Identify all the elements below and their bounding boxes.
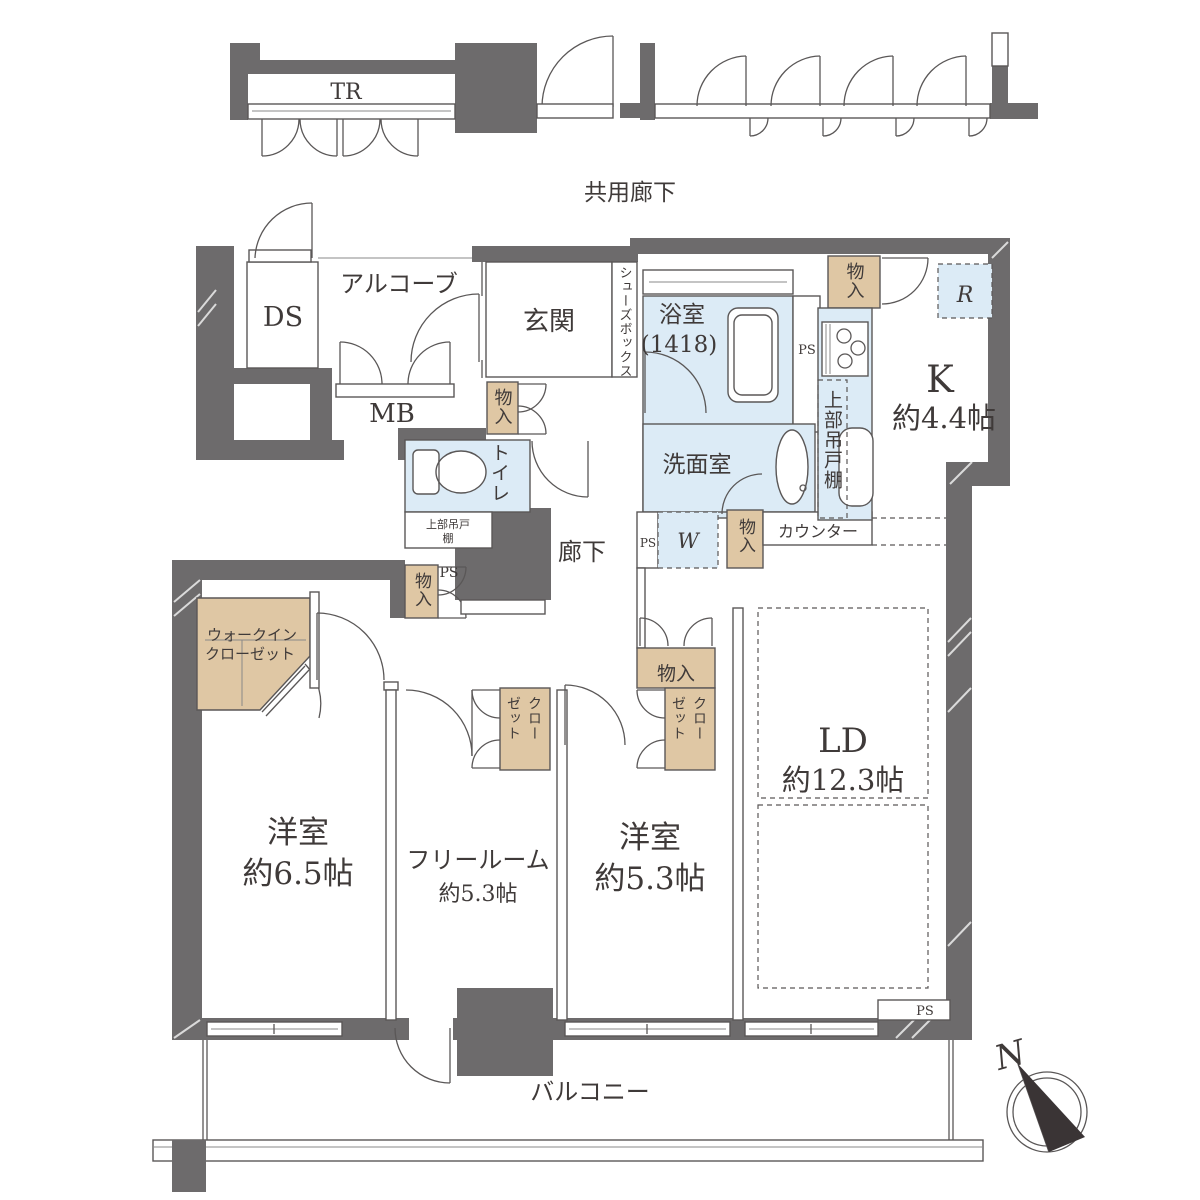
label-balcony: バルコニー xyxy=(530,1078,650,1106)
toilet-room: トイレ xyxy=(405,440,530,512)
free-room-door xyxy=(406,690,472,756)
entry-zone: DS アルコーブ MB 玄関 シューズボックス xyxy=(247,203,637,429)
label-storage-washroom: 物入 xyxy=(735,518,756,554)
label-common-corridor: 共用廊下 xyxy=(584,180,676,206)
label-bedroom2-size: 約5.3帖 xyxy=(594,861,705,897)
kitchen-sink xyxy=(839,428,873,506)
label-wic-2: クローゼット xyxy=(205,645,295,663)
storage-kitchen: 物入 xyxy=(828,256,928,308)
walk-in-closet: ウォークイン クローゼット xyxy=(197,598,321,718)
label-washroom: 洗面室 xyxy=(663,452,732,478)
label-kitchen-size: 約4.4帖 xyxy=(892,401,996,435)
floor-plan: TR 共用廊下 xyxy=(0,0,1200,1200)
label-bathroom: 浴室 xyxy=(659,302,705,328)
label-free-room-size: 約5.3帖 xyxy=(439,882,518,907)
label-bedroom2: 洋室 xyxy=(619,820,681,856)
bedroom1-door xyxy=(317,613,384,680)
label-storage-kitchen: 物入 xyxy=(844,262,865,300)
label-closet1-col1: クロー xyxy=(526,696,542,741)
storage-hall-upper: 物入 xyxy=(487,382,546,434)
label-counter: カウンター xyxy=(778,522,858,541)
label-bathroom-size: (1418) xyxy=(641,332,717,358)
label-storage-hall-upper: 物入 xyxy=(492,388,513,426)
window-living xyxy=(745,1022,878,1036)
label-alcove: アルコーブ xyxy=(340,270,458,298)
tr-double-doors xyxy=(262,119,418,156)
label-ps-living: PS xyxy=(916,1004,934,1019)
label-closet2-col1: クロー xyxy=(691,696,707,741)
window-bedroom2 xyxy=(565,1022,730,1036)
label-north: N xyxy=(989,1032,1031,1079)
label-living-dining-size: 約12.3帖 xyxy=(782,763,905,797)
closet-free-room: クロー ゼット xyxy=(472,688,550,770)
stove xyxy=(822,322,868,376)
compass-needle xyxy=(1018,1064,1085,1152)
label-washer: W xyxy=(677,529,701,553)
label-ps-washroom: PS xyxy=(640,536,656,550)
closet-bedroom2: クロー ゼット xyxy=(637,688,715,770)
bedroom1-zone: ウォークイン クローゼット 洋室 約6.5帖 xyxy=(197,592,398,892)
label-wic-1: ウォークイン xyxy=(207,626,297,644)
storage-bedroom2: 物入 xyxy=(637,618,715,688)
label-closet2-col2: ゼット xyxy=(670,696,686,741)
label-kitchen: K xyxy=(926,358,955,401)
mb-doors xyxy=(336,342,454,397)
label-hallway: 廊下 xyxy=(558,538,606,566)
ps-living xyxy=(878,1000,950,1020)
label-living-dining: LD xyxy=(818,721,868,761)
label-bedroom1: 洋室 xyxy=(267,815,329,851)
corridor-end-door xyxy=(537,36,613,118)
label-closet1-col2: ゼット xyxy=(505,696,521,741)
floor-plan-page: TR 共用廊下 xyxy=(0,0,1200,1200)
label-meter-box: MB xyxy=(369,399,415,429)
label-upper-cabinet-1: 上部吊戸 xyxy=(426,517,470,531)
common-corridor-structure: TR 共用廊下 xyxy=(230,33,1038,206)
label-toilet: トイレ xyxy=(488,443,510,503)
balcony-railing xyxy=(153,1140,983,1161)
label-trunk-room: TR xyxy=(330,80,363,105)
label-upper-cabinet-kitchen: 上部吊戸棚 xyxy=(821,390,843,490)
window-bedroom1 xyxy=(207,1022,342,1036)
label-upper-cabinet-2: 棚 xyxy=(443,531,454,545)
label-entrance: 玄関 xyxy=(523,307,575,337)
label-ps-bath: PS xyxy=(798,343,816,358)
label-shoes-box: シューズボックス xyxy=(617,266,632,378)
ds-door xyxy=(249,203,312,262)
label-storage-bedroom2: 物入 xyxy=(657,663,695,685)
living-dining-zone: LD 約12.3帖 xyxy=(637,568,928,1020)
storage-washroom: 物入 xyxy=(727,510,763,568)
label-free-room: フリールーム xyxy=(406,846,549,874)
label-refrigerator: R xyxy=(956,283,974,308)
toilet-door xyxy=(532,441,588,497)
label-duct-space: DS xyxy=(263,302,303,333)
ps-bath xyxy=(793,296,820,432)
upper-cabinet-box: 上部吊戸 棚 xyxy=(405,512,492,548)
bedroom2-zone: 物入 クロー ゼット 洋室 約5.3帖 xyxy=(557,618,715,1020)
neighbour-unit-doors xyxy=(697,56,987,136)
balcony-zone: PS バルコニー xyxy=(153,1000,983,1192)
label-storage-hall-lower: 物入 xyxy=(411,572,432,608)
bedroom2-door xyxy=(565,685,625,745)
compass: N xyxy=(989,1032,1087,1152)
label-bedroom1-size: 約6.5帖 xyxy=(242,856,353,892)
free-room-zone: クロー ゼット フリールーム 約5.3帖 xyxy=(386,688,550,1020)
